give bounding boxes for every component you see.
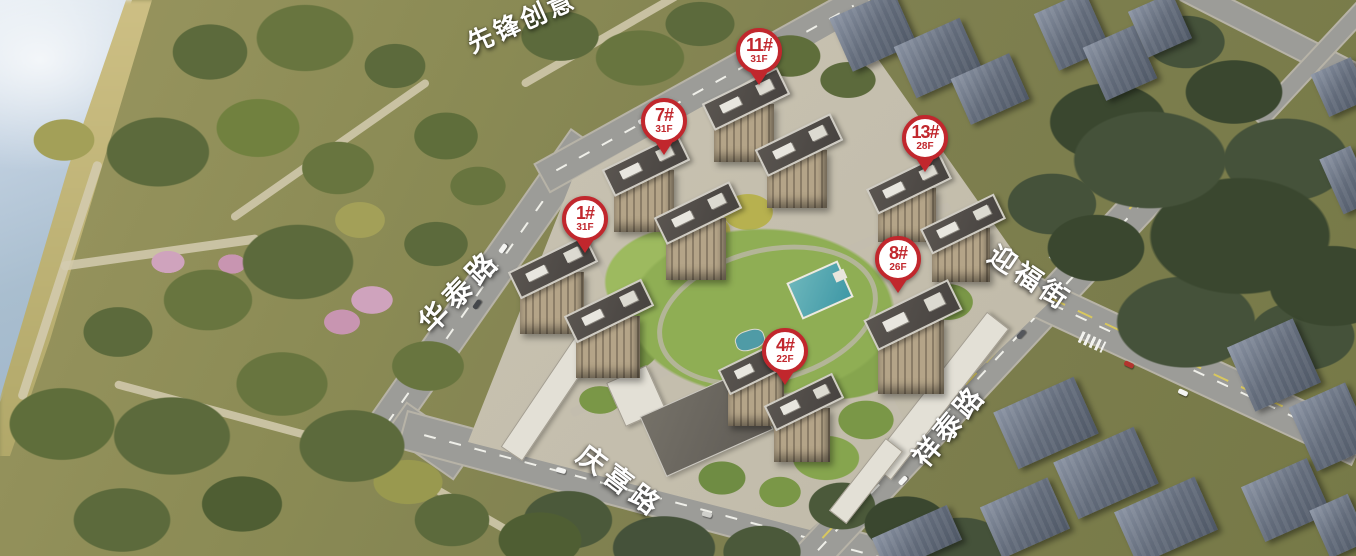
building-pin-8[interactable]: 8# 26F <box>875 236 921 293</box>
pin-head: 13# 28F <box>902 115 948 161</box>
pin-tail <box>749 70 769 85</box>
pin-head: 1# 31F <box>562 196 608 242</box>
building-pin-11[interactable]: 11# 31F <box>736 28 782 85</box>
pin-tail <box>575 238 595 253</box>
pin-floor-count: 26F <box>889 262 906 275</box>
pin-building-number: 8# <box>889 244 907 262</box>
pin-floor-count: 31F <box>750 54 767 67</box>
pin-head: 8# 26F <box>875 236 921 282</box>
pin-tail <box>775 370 795 385</box>
pin-tail <box>915 157 935 172</box>
pin-tail <box>654 140 674 155</box>
pin-floor-count: 28F <box>916 141 933 154</box>
pin-building-number: 7# <box>655 106 673 124</box>
building-pin-4[interactable]: 4# 22F <box>762 328 808 385</box>
pin-building-number: 1# <box>576 204 594 222</box>
masterplan-scene: 先锋创意 华泰路 迎福街 祥泰路 庆喜路 1# 31F 7# 31F 11# 3… <box>0 0 1356 556</box>
pin-building-number: 13# <box>911 123 938 141</box>
pin-head: 4# 22F <box>762 328 808 374</box>
pin-building-number: 4# <box>776 336 794 354</box>
pin-floor-count: 22F <box>776 354 793 367</box>
pin-floor-count: 31F <box>655 124 672 137</box>
building-pin-7[interactable]: 7# 31F <box>641 98 687 155</box>
pin-head: 11# 31F <box>736 28 782 74</box>
pin-floor-count: 31F <box>576 222 593 235</box>
pin-building-number: 11# <box>746 36 772 54</box>
building-pin-13[interactable]: 13# 28F <box>902 115 948 172</box>
pin-tail <box>888 278 908 293</box>
pin-head: 7# 31F <box>641 98 687 144</box>
building-pin-1[interactable]: 1# 31F <box>562 196 608 253</box>
